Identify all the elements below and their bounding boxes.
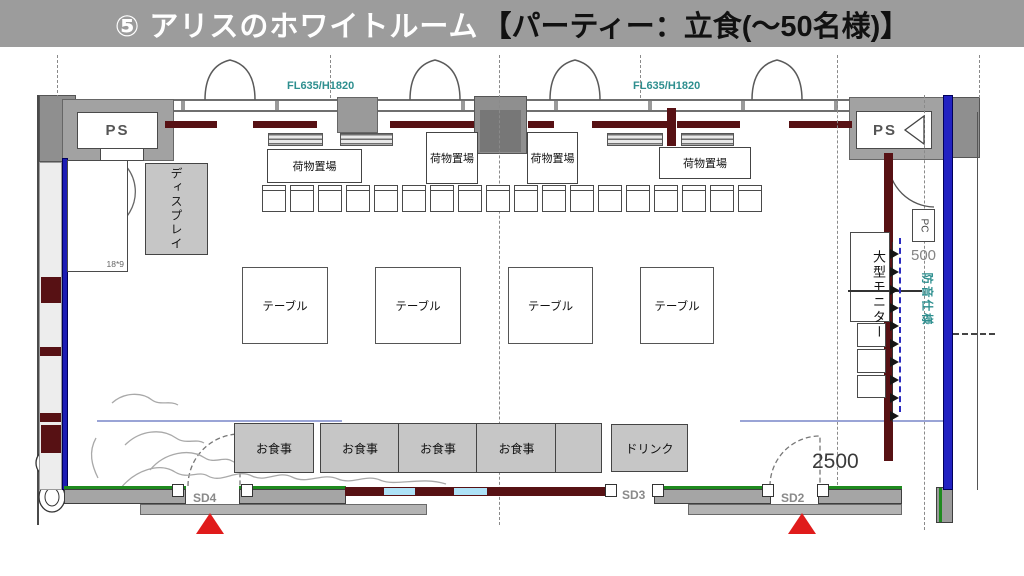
radiator [268, 133, 323, 146]
plug-arrow [890, 393, 899, 403]
chair [458, 185, 482, 212]
radiator [681, 133, 734, 146]
bottom-wall-outer [140, 504, 427, 515]
screen-dash-line [899, 238, 901, 412]
plug-arrow [890, 339, 899, 349]
empty-counter [555, 423, 602, 473]
luggage-area-2: 荷物置場 [426, 132, 478, 184]
door-label-sd4: SD4 [193, 491, 216, 505]
plug-arrow-column [890, 245, 899, 425]
door-jamb [817, 484, 829, 497]
pc-label: PC [918, 219, 929, 233]
party-table-1: テーブル [242, 267, 328, 344]
wall-bar [592, 121, 669, 128]
display-area: ディスプレイ [145, 163, 208, 255]
luggage-label: 荷物置場 [430, 150, 474, 166]
left-column-box [41, 277, 61, 303]
food-label: お食事 [420, 440, 456, 457]
table-label: テーブル [654, 298, 699, 314]
mullion [648, 101, 652, 110]
chair [402, 185, 426, 212]
soundproof-note: 防音仕様 [921, 255, 936, 345]
chair [654, 185, 678, 212]
luggage-area-4: 荷物置場 [659, 147, 751, 179]
chair [486, 185, 510, 212]
ps-right-label: PS [873, 122, 897, 139]
radiator [340, 133, 393, 146]
wall-stub [667, 108, 676, 146]
plug-arrow [890, 249, 899, 259]
decorative-squiggle [112, 394, 178, 405]
food-counter-1: お食事 [234, 423, 314, 473]
dimension-2500: 2500 [812, 450, 859, 474]
bottom-wall [64, 489, 186, 504]
decorative-squiggle [125, 432, 204, 445]
luggage-label: 荷物置場 [683, 155, 727, 171]
luggage-area-3: 荷物置場 [527, 132, 578, 184]
chair [626, 185, 650, 212]
window-pier [337, 97, 378, 133]
table-label: テーブル [395, 298, 440, 314]
plug-arrow [890, 321, 899, 331]
chair [710, 185, 734, 212]
left-column-strip [40, 347, 61, 356]
wall-bar [528, 121, 554, 128]
mullion [181, 101, 185, 110]
window-swing-arc [205, 60, 255, 100]
chair [262, 185, 286, 212]
stacked-chairs-row [262, 185, 768, 213]
table-label: テーブル [528, 298, 573, 314]
display-label: ディスプレイ [168, 167, 185, 251]
door-jamb [652, 484, 664, 497]
chair [374, 185, 398, 212]
luggage-area-1: 荷物置場 [267, 149, 362, 183]
luggage-label: 荷物置場 [531, 150, 575, 166]
left-column-strip [40, 413, 61, 422]
table-label: テーブル [262, 298, 307, 314]
bottom-wall [239, 489, 346, 504]
food-label: お食事 [256, 440, 292, 457]
sd4-door-arc [188, 434, 240, 486]
guide-line [740, 420, 952, 422]
drink-label: ドリンク [625, 440, 673, 457]
chair [318, 185, 342, 212]
guide-line [97, 420, 342, 422]
corner-green-edge [939, 488, 942, 522]
chair [514, 185, 538, 212]
entrance-marker-right [788, 513, 816, 534]
mullion [554, 101, 558, 110]
wall-bar [390, 121, 474, 128]
grid-line [979, 55, 980, 98]
wall-bar [253, 121, 317, 128]
mullion [461, 101, 465, 110]
party-table-4: テーブル [640, 267, 714, 344]
window-swing-arc [410, 60, 460, 100]
grid-line [640, 55, 641, 98]
slide-title-main: ⑤ アリスのホワイトルーム [115, 3, 479, 45]
slide-title-bar: ⑤ アリスのホワイトルーム 【パーティー：立食(～50名様)】 [0, 0, 1024, 47]
left-closet: 18*9 [67, 160, 128, 272]
plug-arrow [890, 267, 899, 277]
chair [290, 185, 314, 212]
plug-arrow [890, 375, 899, 385]
top-window-band [74, 99, 852, 112]
door-jamb [605, 484, 617, 497]
plug-arrow [890, 357, 899, 367]
bottom-wall [654, 489, 771, 504]
wall-bar [677, 121, 740, 128]
food-counter-3: お食事 [398, 423, 478, 473]
chair [542, 185, 566, 212]
mullion [275, 101, 279, 110]
entrance-marker-left [196, 513, 224, 534]
window-spec-label-right: FL635/H1820 [633, 80, 723, 92]
decorative-squiggle [92, 438, 98, 478]
plug-arrow [890, 285, 899, 295]
window-swing-arc [752, 60, 802, 100]
slide-title-bracket: 【パーティー：立食(～50名様)】 [482, 3, 909, 45]
food-counter-2: お食事 [320, 423, 400, 473]
right-thin-line [977, 112, 978, 490]
party-table-2: テーブル [375, 267, 461, 344]
plug-arrow [890, 411, 899, 421]
chair [598, 185, 622, 212]
grid-line [837, 55, 838, 490]
grid-line [330, 55, 331, 98]
fixture-outline [45, 488, 59, 506]
luggage-label: 荷物置場 [293, 158, 337, 174]
door-label-sd2: SD2 [781, 491, 804, 505]
food-counter-4: お食事 [476, 423, 557, 473]
right-blue-wall [943, 95, 953, 490]
drink-counter: ドリンク [611, 424, 688, 472]
dash-tick-right [953, 333, 995, 335]
ps-left-label: PS [105, 122, 129, 139]
partition-window [454, 488, 487, 495]
grid-line [57, 55, 58, 98]
mullion [741, 101, 745, 110]
partition-window [384, 488, 415, 495]
door-label-sd3: SD3 [622, 488, 645, 502]
left-column-box [41, 425, 61, 453]
chair [570, 185, 594, 212]
center-pillar-inner [480, 110, 521, 152]
chair [346, 185, 370, 212]
monitor-mount-line [848, 290, 922, 292]
ps-left-room: PS [77, 112, 158, 149]
food-label: お食事 [498, 440, 534, 457]
closet-size-note: 18*9 [107, 259, 125, 269]
door-jamb [241, 484, 253, 497]
right-door-arc [888, 162, 934, 207]
door-jamb [172, 484, 184, 497]
plug-arrow [890, 303, 899, 313]
monitor-label: 大型モニター [862, 250, 888, 390]
ps-right-room: PS [856, 111, 932, 149]
bottom-wall [818, 489, 902, 504]
radiator [607, 133, 663, 146]
window-spec-label-left: FL635/H1820 [287, 80, 377, 92]
party-table-3: テーブル [508, 267, 593, 344]
pc-box: PC [912, 209, 935, 242]
window-swing-arc [550, 60, 600, 100]
food-label: お食事 [342, 440, 378, 457]
chair [430, 185, 454, 212]
wall-bar [789, 121, 852, 128]
chair [682, 185, 706, 212]
chair [738, 185, 762, 212]
wall-bar [165, 121, 217, 128]
door-jamb [762, 484, 774, 497]
